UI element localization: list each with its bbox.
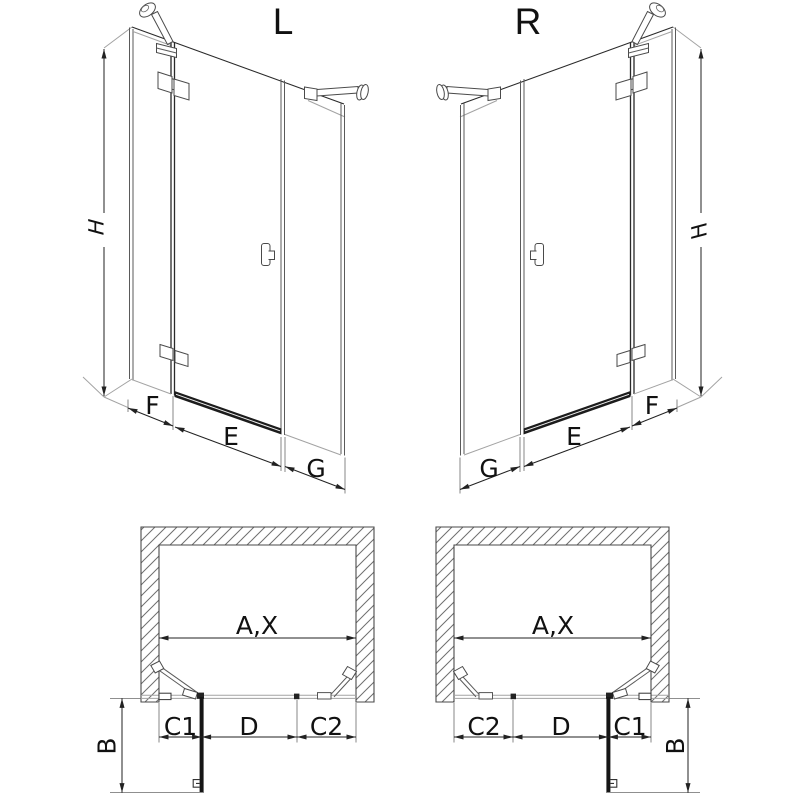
dim-label-c2-right: C2	[467, 712, 500, 741]
dim-label-ax-right: A,X	[532, 611, 574, 640]
dim-label-h-right: H	[688, 220, 713, 242]
dim-label-b-left: B	[93, 737, 122, 754]
shower-enclosure-technical-drawing: L H F E G R H F E G A,X C1 D C2 B A,X C2…	[0, 0, 800, 800]
right-enclosure-linework	[435, 0, 722, 493]
left-perspective-view: L H F E G	[83, 0, 370, 493]
right-perspective-view: R H F E G	[435, 0, 722, 493]
dim-label-c1-right: C1	[613, 712, 646, 741]
left-view-label: L	[273, 1, 294, 42]
dim-label-g-right: G	[479, 454, 498, 483]
left-enclosure-linework	[83, 0, 370, 493]
left-plan-view: A,X C1 D C2 B	[93, 527, 375, 793]
dim-label-c2-left: C2	[310, 712, 343, 741]
dim-label-d-right: D	[551, 712, 570, 741]
dim-label-e-left: E	[223, 422, 239, 451]
dim-label-e-right: E	[566, 422, 582, 451]
right-view-label: R	[515, 1, 542, 42]
dim-label-h-left: H	[85, 216, 110, 238]
right-plan-view: A,X C2 D C1 B	[436, 527, 700, 793]
dim-label-b-right: B	[661, 737, 690, 754]
dim-label-ax-left: A,X	[236, 611, 278, 640]
diagram-canvas: L H F E G R H F E G A,X C1 D C2 B A,X C2…	[0, 0, 800, 800]
dim-label-f-left: F	[145, 391, 159, 420]
dim-label-g-left: G	[306, 454, 325, 483]
dim-label-f-right: F	[645, 391, 659, 420]
dim-label-d-left: D	[239, 712, 258, 741]
dim-label-c1-left: C1	[164, 712, 197, 741]
